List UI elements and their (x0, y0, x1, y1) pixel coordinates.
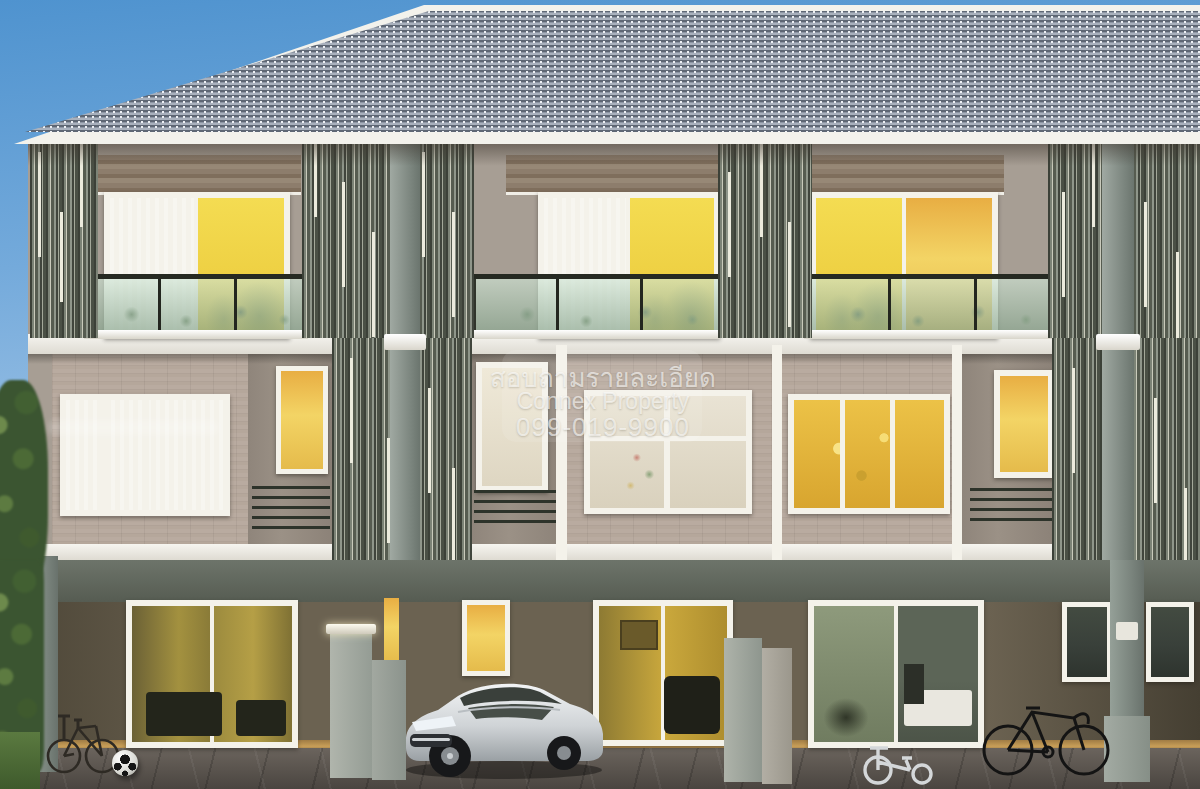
pillar-bracket (1096, 334, 1140, 350)
tiled-roof (0, 0, 1200, 140)
balcony-base (804, 330, 1054, 339)
carport-beam (28, 560, 1200, 602)
rail-post (556, 279, 559, 330)
bay-railing (252, 486, 330, 530)
window-glass (1067, 607, 1107, 677)
window-mullion (890, 400, 895, 508)
pillar-lamp-cap (326, 624, 376, 634)
sofa-silhouette (146, 692, 222, 736)
wall-art (620, 620, 658, 650)
utility-box (1116, 622, 1138, 640)
grass (0, 732, 40, 789)
window-glass (794, 400, 944, 508)
faint-watermark (48, 420, 220, 435)
window-mullion (186, 400, 191, 510)
louver-highlight (350, 358, 353, 463)
sofa-silhouette (236, 700, 286, 736)
balcony-glass-railing (474, 279, 724, 330)
rail-post (158, 279, 161, 330)
window-mullion (144, 400, 149, 510)
townhome-rendering: สอบถามรายละเอียด Connex Property 099-019… (0, 0, 1200, 789)
watermark-line3: 099-019-9900 (420, 412, 786, 443)
louver-screen (30, 142, 98, 338)
fence-wall (762, 648, 792, 784)
louver-highlight (1176, 252, 1179, 338)
rail-post (888, 279, 891, 330)
louver-highlight (728, 172, 731, 277)
balcony-base (84, 330, 308, 339)
road-bike (978, 676, 1118, 780)
window-mullion (102, 400, 107, 510)
lit-slot (384, 598, 399, 662)
louver-highlight (452, 212, 455, 317)
bay-railing (474, 490, 560, 530)
louver-highlight (1144, 202, 1147, 307)
door-glass (814, 606, 894, 742)
window-glass (281, 371, 323, 469)
louver-highlight (342, 182, 345, 287)
louver-screen (302, 142, 474, 338)
window-glass (1000, 376, 1048, 472)
rail-post (640, 279, 643, 330)
tricycle (858, 724, 944, 788)
fence-pillar (330, 630, 372, 778)
rail-post (234, 279, 237, 330)
window-mullion (840, 400, 845, 508)
louver-screen (718, 142, 812, 338)
louver-highlight (422, 152, 425, 257)
sedan-car (392, 656, 614, 782)
soccer-ball (112, 750, 138, 776)
louver-highlight (1154, 398, 1157, 503)
louver-highlight (452, 468, 455, 560)
louver-highlight (1072, 368, 1075, 473)
watermark-line2: Connex Property (420, 388, 786, 415)
white-pilaster (952, 345, 962, 560)
louver-highlight (1184, 488, 1187, 560)
pillar-bracket (384, 334, 426, 350)
louver-highlight (60, 212, 63, 302)
balcony-glass-railing (84, 279, 312, 330)
floor-slab-band (28, 544, 1200, 560)
divider-pillar (1102, 142, 1134, 560)
dining-set-silhouette (664, 676, 720, 734)
balcony-base (474, 330, 720, 339)
louver-highlight (372, 232, 375, 337)
fence-pillar (724, 638, 762, 782)
divider-pillar (390, 142, 420, 560)
bay-railing (970, 488, 1054, 528)
balcony-glass-railing (804, 279, 1058, 330)
rail-post (974, 279, 977, 330)
eave-shadow (28, 142, 1200, 166)
window-glass (1151, 607, 1189, 677)
bicycle (44, 690, 120, 778)
louver-highlight (788, 222, 791, 327)
louver-highlight (38, 152, 41, 257)
headboard-silhouette (904, 664, 924, 704)
louver-highlight (1062, 192, 1065, 297)
